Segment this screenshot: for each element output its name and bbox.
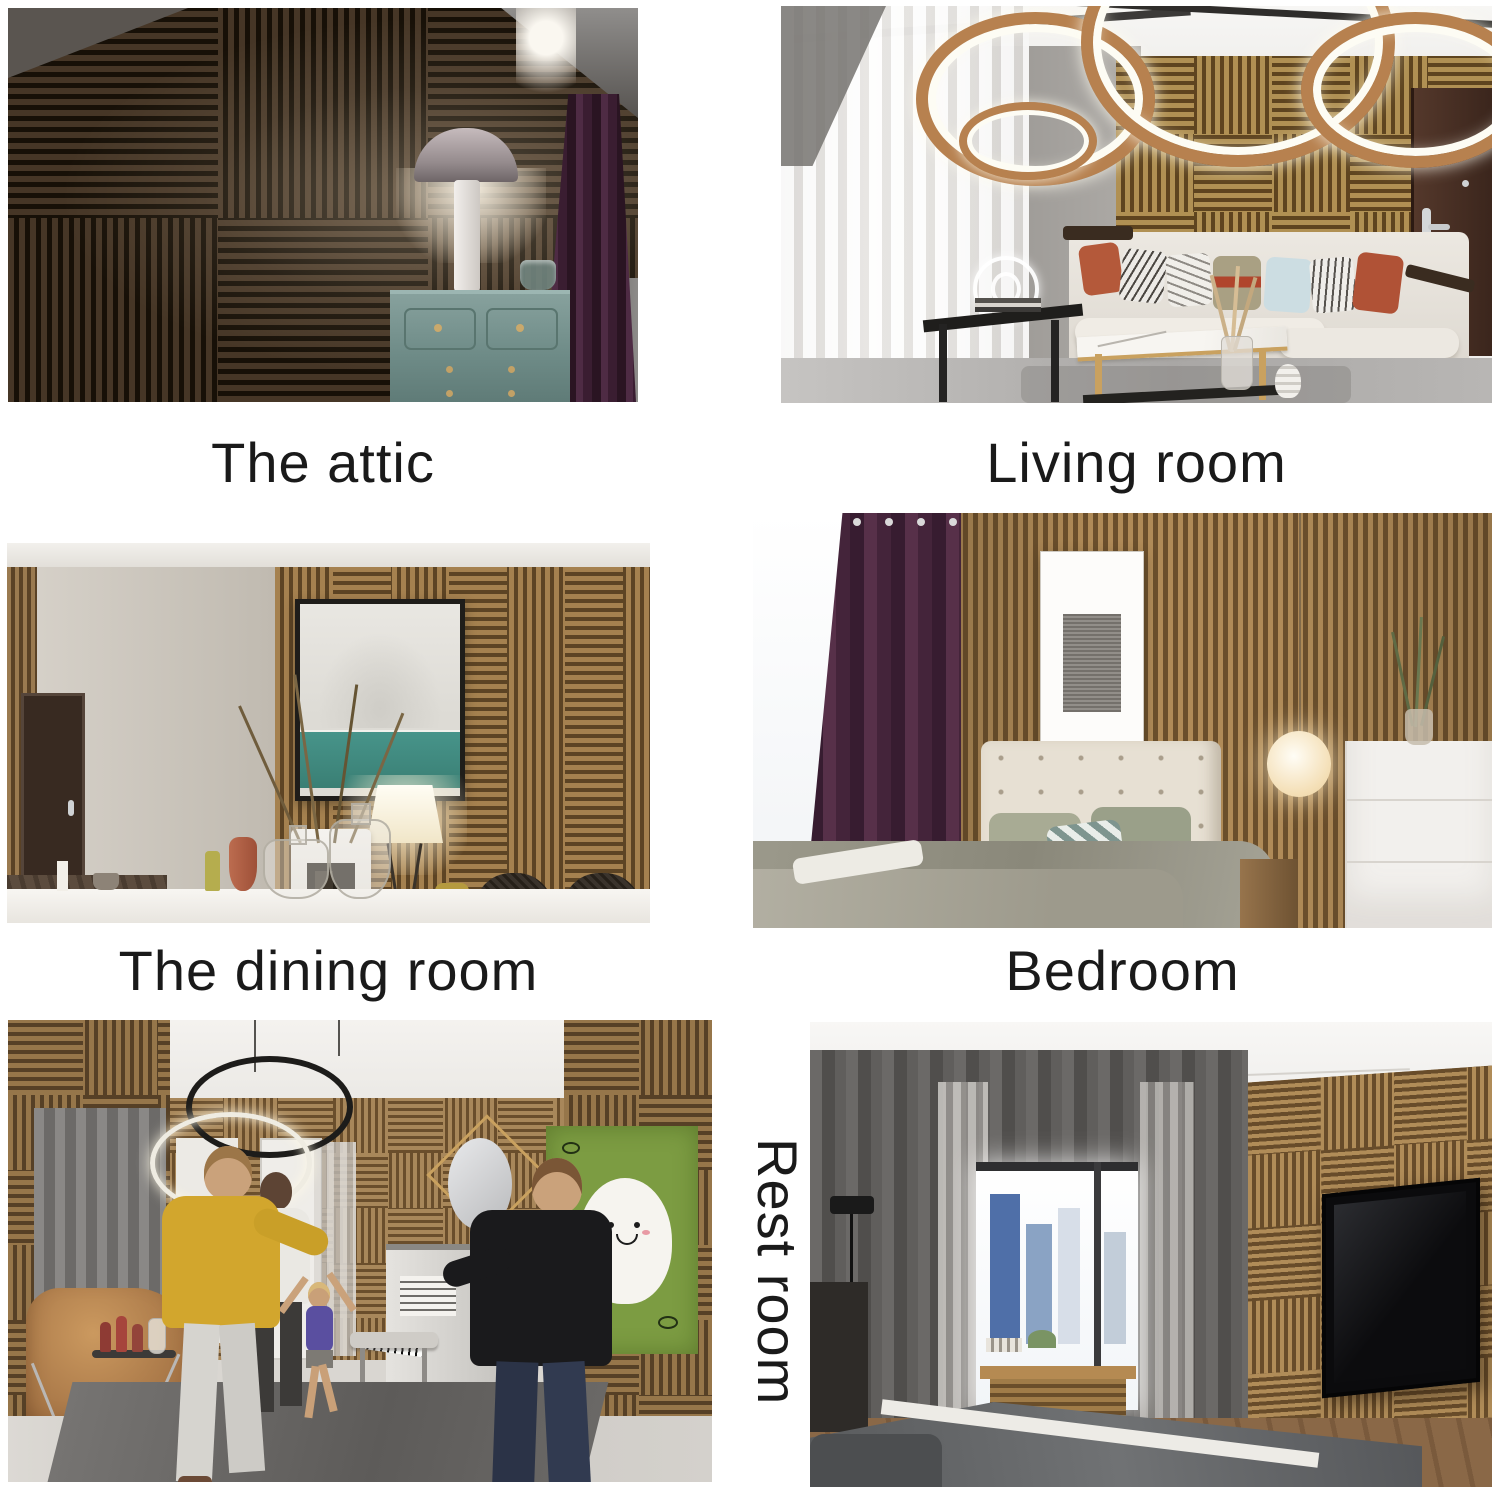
books — [975, 298, 1041, 312]
pants-leg — [176, 1323, 220, 1482]
jeans-leg — [543, 1361, 592, 1482]
throw-pillow — [1118, 248, 1167, 304]
lower-shelf — [1083, 385, 1279, 403]
dresser-knob — [446, 366, 453, 373]
door-handle-lever — [1428, 224, 1450, 230]
dresser-knob — [434, 324, 442, 332]
city-tower — [1026, 1224, 1052, 1344]
living-room-photo — [781, 6, 1492, 403]
door-peephole — [1462, 180, 1469, 187]
plant-vase — [1405, 709, 1433, 745]
attic-photo — [8, 8, 638, 402]
mug — [93, 873, 119, 890]
lamp-shade — [830, 1196, 874, 1214]
pants-leg — [219, 1323, 265, 1473]
side-table — [923, 306, 1083, 403]
art-mountain — [318, 632, 442, 728]
wood-stool — [1240, 859, 1298, 928]
curtain-grommet — [917, 518, 925, 526]
crystal-chandelier — [516, 8, 576, 108]
shoe — [178, 1476, 212, 1482]
mushroom-lamp-stem — [454, 180, 480, 292]
pendant-cord — [1299, 513, 1301, 735]
city-tower — [990, 1194, 1020, 1344]
window-plant — [1028, 1330, 1056, 1348]
head — [308, 1282, 330, 1308]
curtain-grommet — [949, 518, 957, 526]
white-vessel — [1275, 364, 1301, 398]
lamp-stem — [850, 1212, 853, 1282]
jeans-leg — [492, 1361, 539, 1482]
dresser-knob — [508, 390, 515, 397]
terracotta-vase — [229, 837, 257, 891]
candle — [57, 861, 68, 891]
game-room-photo — [8, 1020, 712, 1482]
torso — [306, 1306, 333, 1352]
bedroom-photo — [753, 513, 1492, 928]
rest-room-photo — [810, 1022, 1492, 1487]
bed-pillow — [810, 1434, 942, 1487]
curtain-grommet — [885, 518, 893, 526]
head — [204, 1146, 252, 1200]
bottle — [116, 1316, 127, 1352]
head — [532, 1158, 582, 1214]
caption-bedroom: Bedroom — [753, 938, 1492, 1003]
torso — [470, 1210, 612, 1366]
person-yellow-sweater — [140, 1146, 300, 1482]
glass-jar — [520, 260, 556, 290]
nightstand-dark — [810, 1282, 868, 1432]
caption-rest-room: Rest room — [712, 1122, 810, 1422]
ceiling — [7, 543, 650, 567]
copper-ring-light — [959, 102, 1097, 180]
door-handle — [68, 800, 74, 816]
throw-pillow — [1165, 253, 1213, 308]
green-bottle — [205, 851, 220, 891]
person-black-sweater — [436, 1158, 616, 1482]
city-tower — [1104, 1232, 1126, 1344]
coffee-table — [1077, 332, 1287, 403]
throw-pillow — [1078, 241, 1125, 296]
piano-bench — [350, 1332, 438, 1348]
product-collage: The attic Living room The dining room Be… — [0, 0, 1500, 1493]
caption-attic: The attic — [8, 430, 638, 495]
sheer-panel — [1140, 1082, 1194, 1462]
arm — [326, 1272, 356, 1312]
dresser-knob — [516, 324, 524, 332]
pendant-globe-lamp — [1267, 731, 1331, 797]
curtain-grommet — [853, 518, 861, 526]
wall-mounted-tv — [1322, 1178, 1480, 1399]
window-frame-top — [976, 1162, 1138, 1171]
window-books — [986, 1338, 1022, 1352]
city-tower — [1058, 1208, 1080, 1344]
dresser-knob — [508, 366, 515, 373]
console-top — [980, 1366, 1136, 1379]
glass-demijohn — [329, 819, 391, 899]
leg — [318, 1364, 337, 1413]
leg — [304, 1366, 319, 1419]
sofa-wood-rail — [1063, 226, 1133, 240]
sofa-seat — [1279, 328, 1459, 358]
glass-vase — [1221, 336, 1253, 390]
sofa-wood-rail — [1404, 264, 1475, 294]
caption-living-room: Living room — [781, 430, 1492, 495]
throw-pillow — [1263, 256, 1313, 313]
glass-demijohn — [263, 839, 329, 899]
tv-screen-sheen — [1334, 1191, 1466, 1383]
dresser-knob — [446, 390, 453, 397]
wall-art-frame — [1040, 551, 1144, 767]
dining-table — [7, 889, 650, 923]
caption-dining-room: The dining room — [7, 938, 650, 1003]
throw-pillow — [1309, 256, 1358, 314]
dining-room-photo — [7, 543, 650, 923]
white-dresser — [1345, 741, 1492, 928]
throw-pillow — [1352, 251, 1405, 314]
art-graphic — [1063, 614, 1121, 712]
bottle — [100, 1322, 111, 1352]
pendant-cord — [338, 1020, 340, 1056]
teal-dresser — [390, 290, 570, 402]
